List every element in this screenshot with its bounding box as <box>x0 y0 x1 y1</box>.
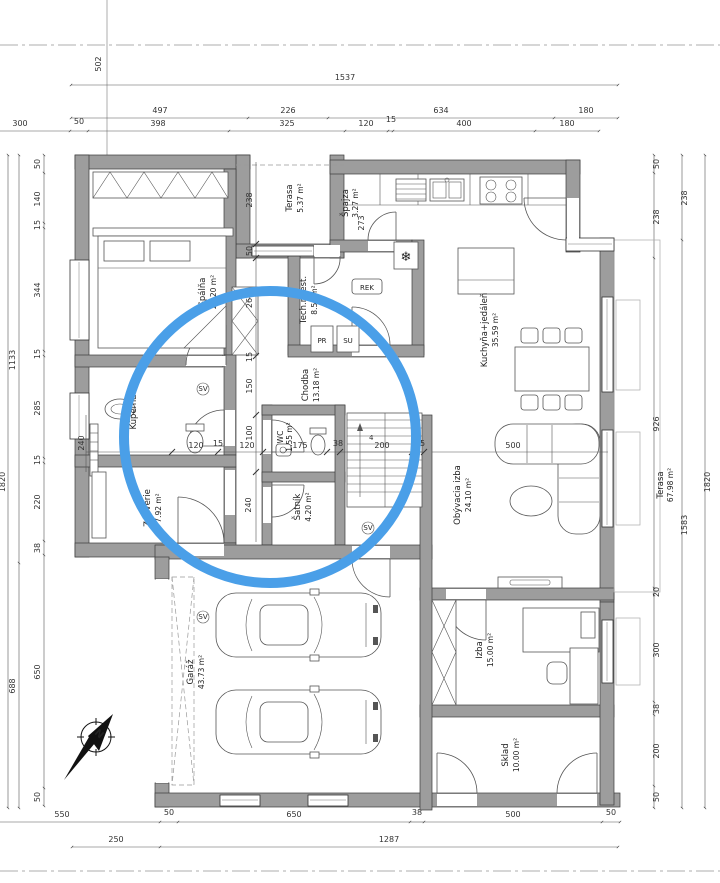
dim-label: 300 <box>652 642 661 657</box>
tv-cabinet-icon <box>498 577 562 588</box>
dim-label: 300 <box>12 119 27 128</box>
room-label-sklad: Sklad <box>501 743 511 766</box>
dim-chain-left: 1820 1133 688 50 140 15 344 15 285 15 22… <box>0 155 44 808</box>
dim-label: 1133 <box>8 350 17 370</box>
room-label-wc: WC <box>276 431 285 444</box>
dim-label: 50 <box>164 808 174 817</box>
zadverie-bench <box>92 472 106 538</box>
dim-label: 220 <box>33 494 42 509</box>
dim-label: 650 <box>286 810 301 819</box>
room-label-izba: Izba <box>475 641 485 659</box>
stair-count-label: 4 <box>369 434 374 442</box>
dim-label: 38 <box>333 439 343 448</box>
dim-label: 550 <box>54 810 69 819</box>
washer-label: PR <box>317 337 326 345</box>
dim-label: 240 <box>77 435 86 450</box>
wardrobe-icon <box>93 172 228 198</box>
room-label-spajza: Špajza <box>339 189 351 217</box>
dim-label: 100 <box>245 425 254 440</box>
dim-label: 200 <box>652 743 661 758</box>
rek-label: REK <box>360 284 374 292</box>
dim-label: 226 <box>280 106 295 115</box>
dim-label: 1820 <box>0 472 7 492</box>
tech-appliances: REK PR SU ❄ <box>311 242 418 352</box>
room-area-obyvacia: 24.10 m² <box>464 478 473 512</box>
car-icon <box>216 686 381 758</box>
light-symbol: SV <box>198 385 207 393</box>
room-label-terasa-small: Terasa <box>285 184 295 212</box>
room-area-garaz: 43.73 m² <box>197 655 206 689</box>
dim-label: 180 <box>559 119 574 128</box>
room-area-satnik: 4.20 m² <box>304 492 313 521</box>
room-label-satnik: Šatník <box>291 494 303 521</box>
room-area-sklad: 10.00 m² <box>512 738 521 772</box>
room-label-garaz: Garáž <box>186 659 196 684</box>
dim-label: 344 <box>33 282 42 297</box>
dim-label: 688 <box>8 678 17 693</box>
kitchen-island <box>458 248 514 294</box>
dim-label: 180 <box>578 106 593 115</box>
dim-label: 650 <box>33 664 42 679</box>
dim-label: 26 <box>245 298 254 308</box>
dim-label: 250 <box>108 835 123 844</box>
dim-label: 500 <box>505 441 520 450</box>
room-area-wc: 1.55 m² <box>285 422 294 451</box>
dim-label: 50 <box>652 792 661 802</box>
dim-chain-bottom: 550 50 650 38 500 50 250 1287 <box>0 808 620 847</box>
dim-label: 502 <box>94 56 103 71</box>
dim-label: 50 <box>33 792 42 802</box>
room-area-kuchyna: 35.59 m² <box>491 313 500 347</box>
room-area-terasa-small: 5.37 m² <box>296 183 305 212</box>
dim-label: 150 <box>245 378 254 393</box>
north-arrow-icon: N <box>64 714 115 780</box>
dim-label: 200 <box>374 441 389 450</box>
dim-label: 1537 <box>335 73 355 82</box>
room-area-spajza: 3.27 m² <box>351 188 360 217</box>
dim-label: 140 <box>33 191 42 206</box>
light-symbol: SV <box>198 613 207 621</box>
room-label-chodba: Chodba <box>301 369 311 402</box>
kitchen-counter <box>344 174 566 205</box>
dim-label: 325 <box>279 119 294 128</box>
dim-label: 15 <box>213 439 223 448</box>
dim-label: 175 <box>292 441 307 450</box>
dim-label: 38 <box>33 543 42 553</box>
dim-chain-top: 1537 497 226 634 180 300 50 398 325 120 … <box>0 73 618 131</box>
dim-label: 240 <box>244 497 253 512</box>
room-label-terasa-big: Terasa <box>656 471 666 499</box>
room-area-zadverie: 7.92 m² <box>154 493 163 522</box>
izba-furniture <box>432 600 599 705</box>
dim-label: 120 <box>358 119 373 128</box>
dim-label: 238 <box>680 190 689 205</box>
dining-set <box>515 328 589 410</box>
dim-label: 50 <box>652 159 661 169</box>
dim-label: 15 <box>33 349 42 359</box>
dim-label: 400 <box>456 119 471 128</box>
dim-label: 1583 <box>680 515 689 535</box>
dim-label: 398 <box>150 119 165 128</box>
dim-label: 15 <box>33 455 42 465</box>
room-area-chodba: 13.18 m² <box>312 368 321 402</box>
dim-label: 15 <box>33 220 42 230</box>
dim-label: 634 <box>433 106 448 115</box>
reference-line: 502 <box>94 0 107 158</box>
room-label-kuchyna: Kuchyňa+jedáleň <box>479 293 490 368</box>
hall-light: SV <box>362 522 374 534</box>
floorplan-drawing: 502 1537 497 226 634 180 300 50 398 325 … <box>0 0 720 883</box>
dim-label: 50 <box>74 117 84 126</box>
dim-label: 50 <box>33 159 42 169</box>
room-label-obyvacia: Obývacia izba <box>453 465 463 525</box>
dim-label: 120 <box>239 441 254 450</box>
snowflake-icon: ❄ <box>401 250 412 265</box>
coffee-table-icon <box>510 486 552 516</box>
dim-label: 238 <box>652 209 661 224</box>
dim-label: 15 <box>386 115 396 124</box>
light-symbol: SV <box>363 524 372 532</box>
room-area-izba: 15.00 m² <box>486 633 495 667</box>
dim-label: 1820 <box>703 472 712 492</box>
dim-label: 238 <box>245 192 254 207</box>
dim-label: 50 <box>606 808 616 817</box>
dim-label: 120 <box>188 441 203 450</box>
floorplan-page: 502 1537 497 226 634 180 300 50 398 325 … <box>0 0 720 883</box>
dim-label: 497 <box>152 106 167 115</box>
car-icon <box>216 589 381 661</box>
dim-label: 1287 <box>379 835 399 844</box>
dim-label: 50 <box>245 246 254 256</box>
dryer-label: SU <box>343 337 353 345</box>
dim-label: 500 <box>505 810 520 819</box>
dim-label: 285 <box>33 400 42 415</box>
garage-light: SV <box>197 611 209 623</box>
room-area-terasa-big: 67.98 m² <box>666 468 675 502</box>
dim-label: 38 <box>652 704 661 714</box>
dim-label: 15 <box>245 352 254 362</box>
